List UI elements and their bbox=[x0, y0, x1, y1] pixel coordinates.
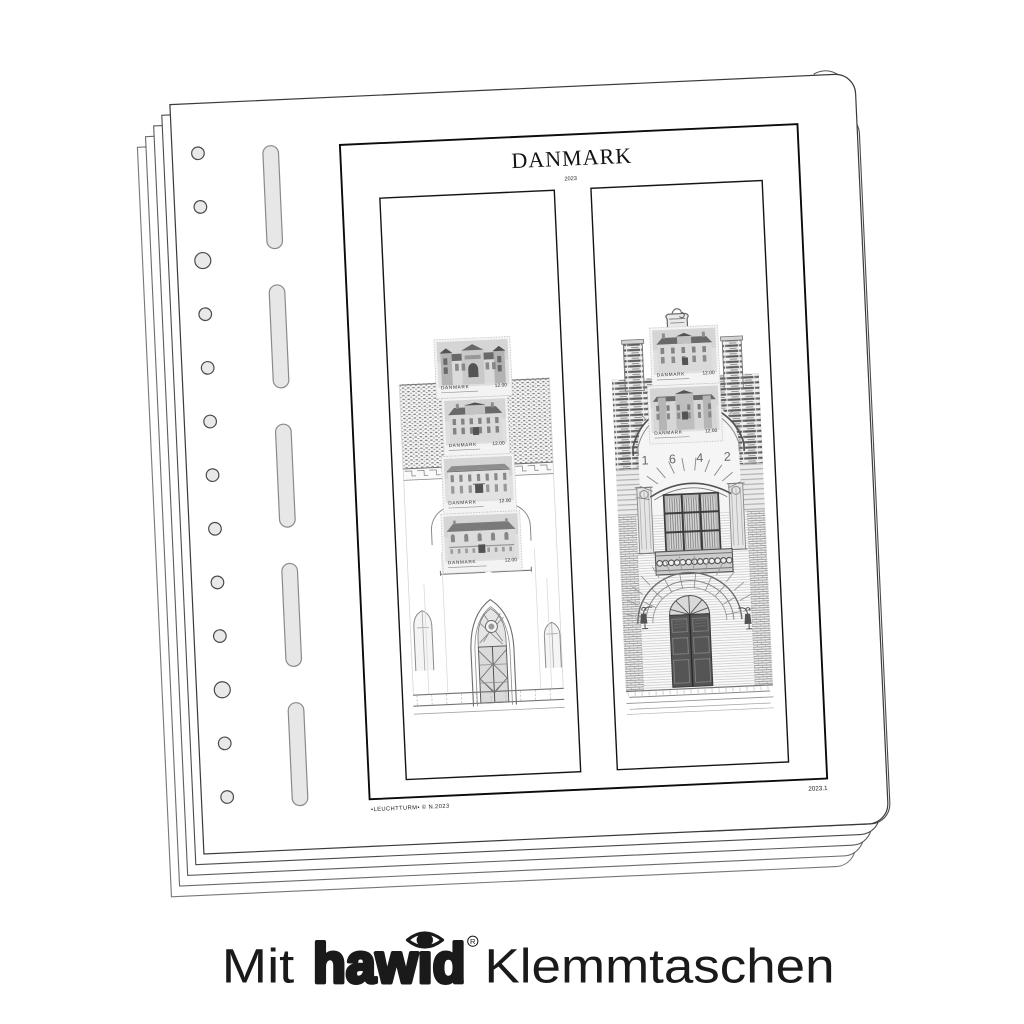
svg-text:2023: 2023 bbox=[564, 176, 577, 183]
svg-text:2023.1: 2023.1 bbox=[808, 785, 828, 793]
svg-text:12.00: 12.00 bbox=[702, 370, 715, 377]
svg-text:Klemmtaschen: Klemmtaschen bbox=[485, 940, 835, 994]
svg-text:Mit: Mit bbox=[222, 940, 295, 994]
svg-text:R: R bbox=[470, 937, 476, 946]
svg-text:12.00: 12.00 bbox=[499, 498, 512, 505]
svg-text:12.00: 12.00 bbox=[492, 441, 505, 448]
svg-text:12.00: 12.00 bbox=[505, 557, 518, 564]
svg-text:12.00: 12.00 bbox=[705, 428, 718, 435]
svg-text:12.00: 12.00 bbox=[495, 382, 508, 389]
